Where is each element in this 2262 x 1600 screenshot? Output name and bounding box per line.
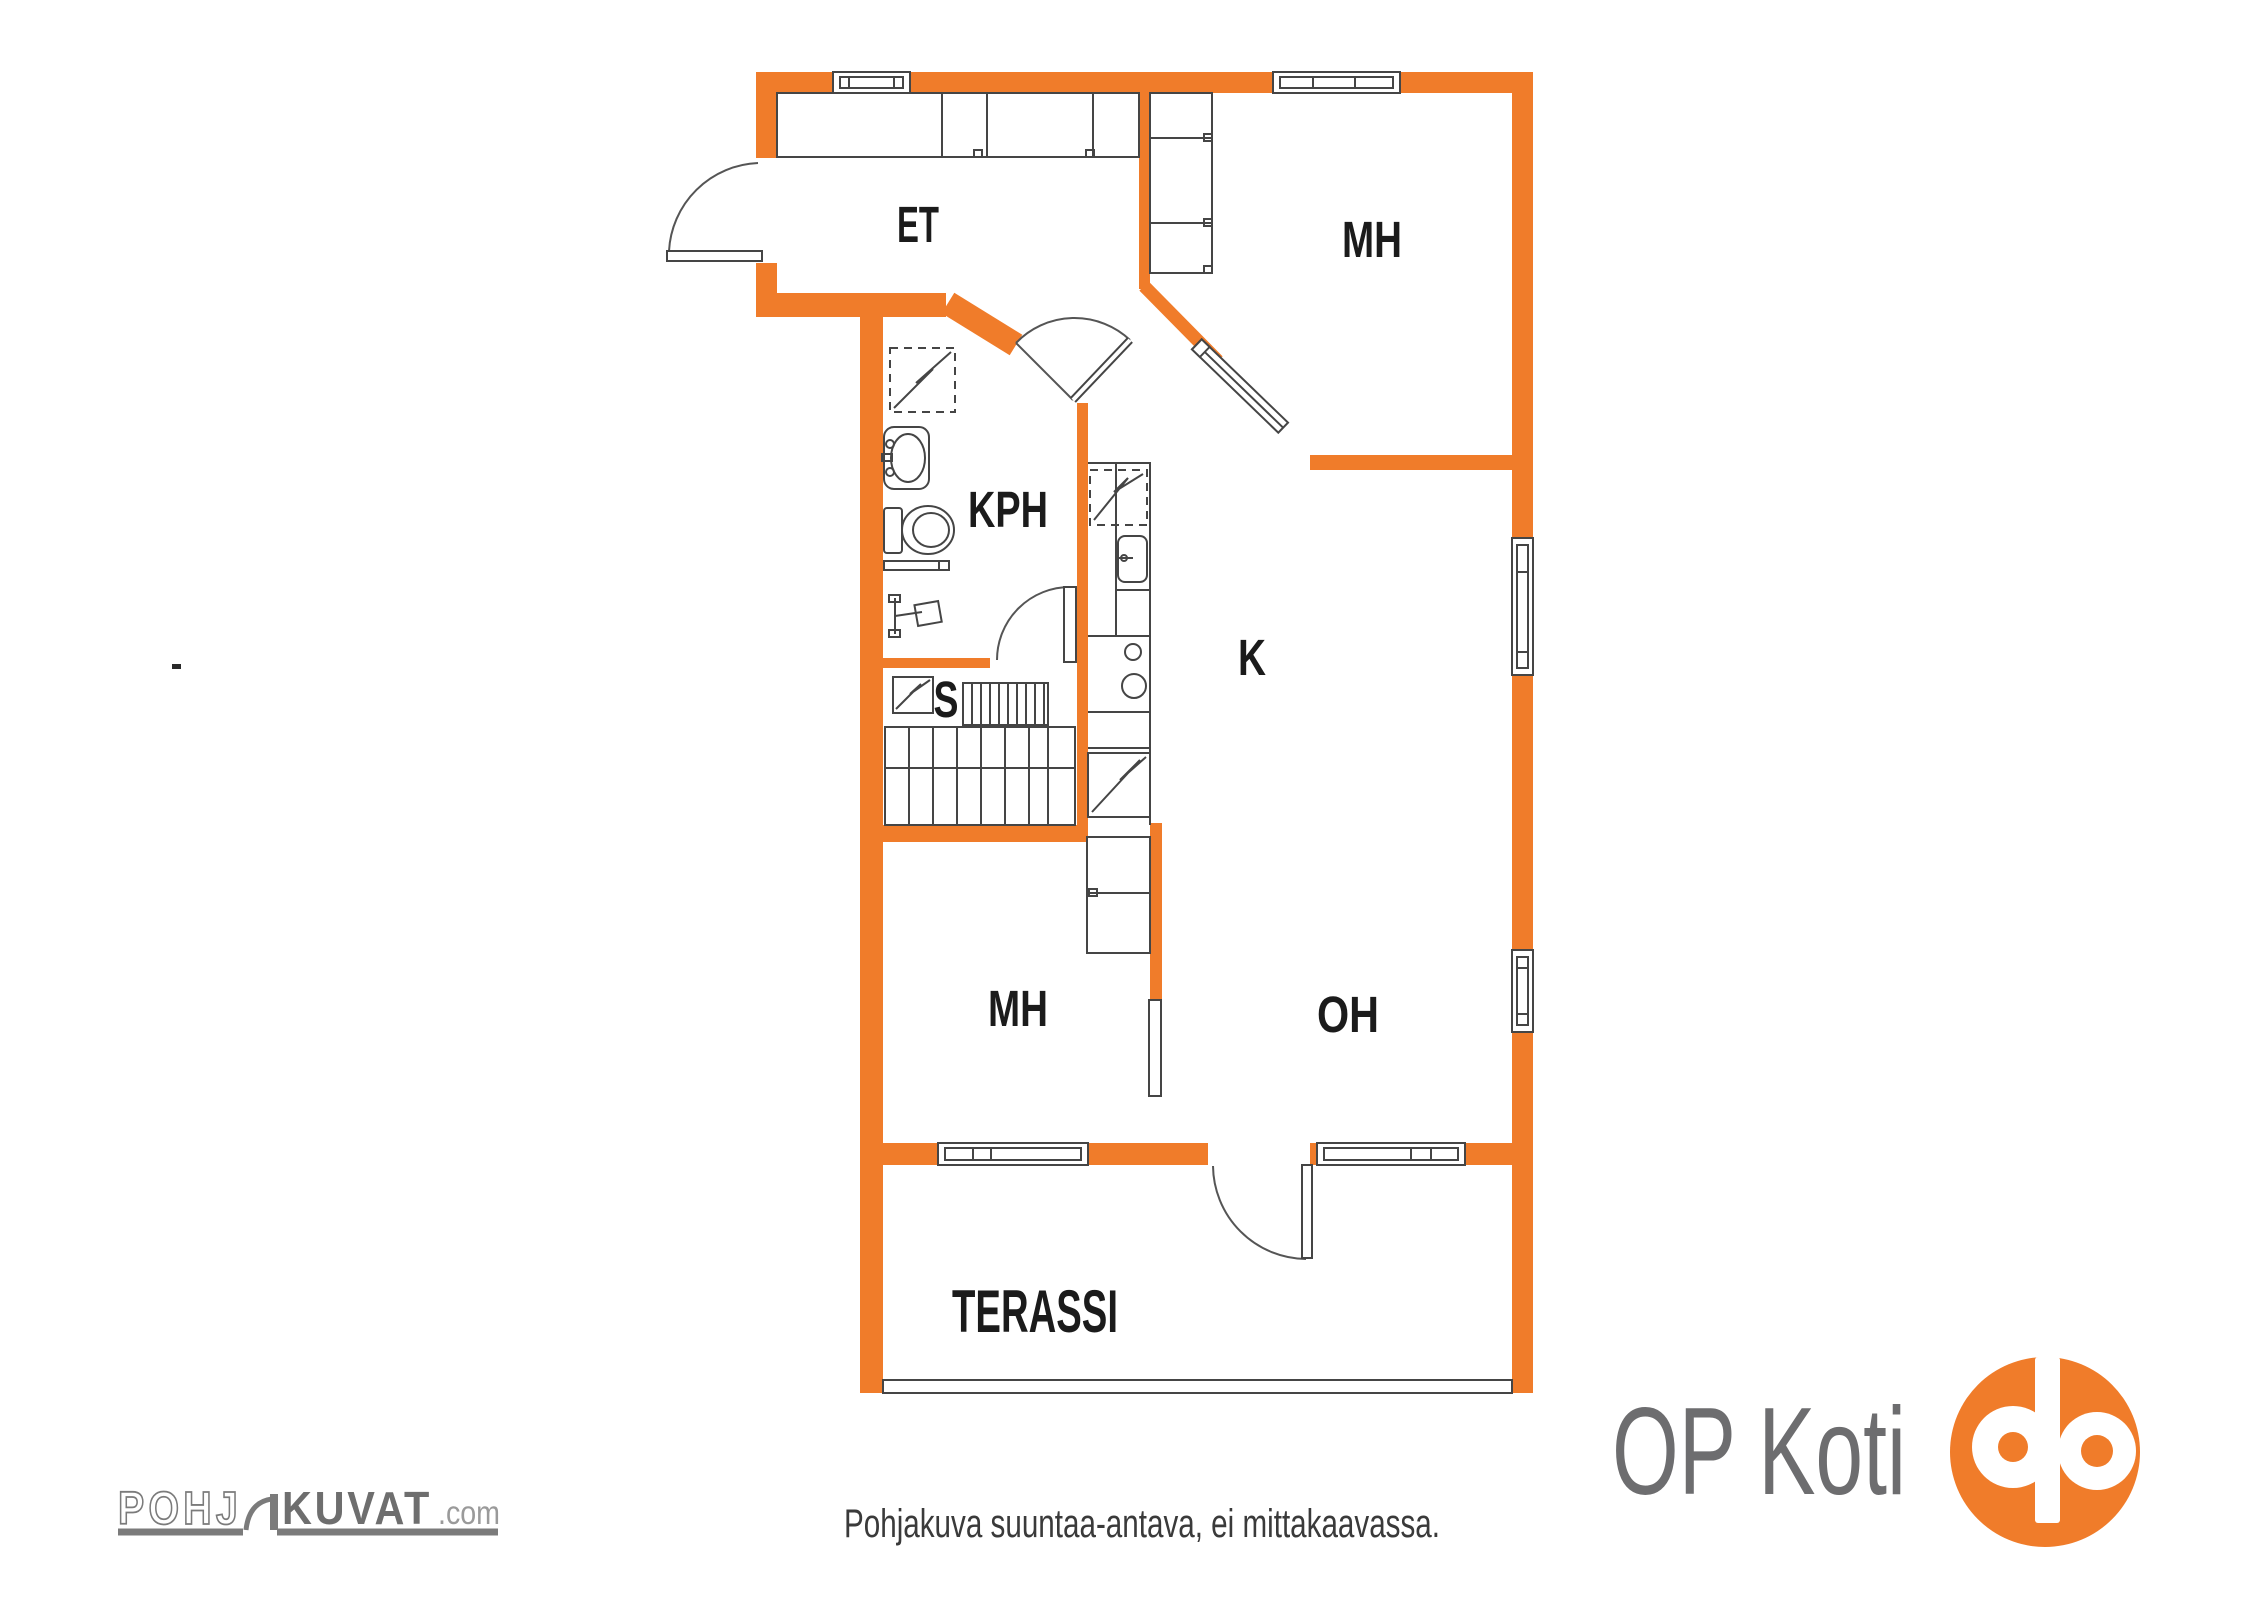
wall-top-middle bbox=[910, 72, 1273, 93]
wall-bedroom-divider bbox=[1139, 93, 1150, 289]
floor-plan-canvas: ET MH KPH K S MH OH TERASSI POHJ KUVAT .… bbox=[0, 0, 2262, 1600]
op-koti-logo: OP Koti bbox=[1612, 1357, 2140, 1547]
hall-fan-door bbox=[1016, 318, 1130, 400]
window-south-1 bbox=[938, 1143, 1088, 1165]
wall-bath-kitchen-divider bbox=[1077, 403, 1088, 842]
stray-dot bbox=[172, 664, 181, 669]
stairs bbox=[885, 683, 1075, 825]
room-label-sauna: S bbox=[934, 671, 959, 728]
room-label-entry: ET bbox=[897, 196, 939, 253]
fridge-icon bbox=[1088, 753, 1150, 817]
wall-right-middle bbox=[1512, 675, 1533, 950]
wall-bath-bottom bbox=[862, 658, 990, 668]
kitchen-sink-icon bbox=[1118, 536, 1147, 582]
wall-south-a bbox=[860, 1143, 938, 1165]
room-label-terrace: TERASSI bbox=[952, 1278, 1118, 1345]
dishwasher-icon bbox=[1090, 470, 1147, 525]
shower-icon bbox=[889, 595, 942, 637]
window-top-2 bbox=[1273, 72, 1400, 93]
room-label-living-room: OH bbox=[1317, 986, 1379, 1043]
disclaimer-text: Pohjakuva suuntaa-antava, ei mittakaavas… bbox=[844, 1502, 1440, 1546]
bathroom-sink-icon bbox=[882, 427, 929, 489]
wall-left-main bbox=[860, 317, 883, 1393]
room-label-kitchen: K bbox=[1238, 629, 1266, 686]
room-label-bathroom: KPH bbox=[968, 481, 1048, 538]
wall-entry-diagonal bbox=[948, 303, 1016, 345]
watermark-solid-text: KUVAT bbox=[282, 1482, 432, 1534]
wall-south-d bbox=[1465, 1143, 1533, 1165]
op-koti-wordmark: OP Koti bbox=[1612, 1383, 1906, 1521]
toilet-icon bbox=[884, 506, 954, 554]
wall-entry-left-upper bbox=[756, 72, 777, 158]
bedroom-sliding-door bbox=[1192, 339, 1288, 432]
op-symbol-icon bbox=[1950, 1357, 2140, 1547]
wall-right-lower bbox=[1512, 1032, 1533, 1393]
terrace-edge bbox=[883, 1380, 1512, 1393]
partition-screen bbox=[1149, 1000, 1161, 1096]
floor-plan: ET MH KPH K S MH OH TERASSI bbox=[667, 72, 1533, 1393]
entry-door bbox=[667, 163, 762, 261]
bathroom-door bbox=[997, 587, 1076, 662]
pohjakuvat-watermark: POHJ KUVAT .com bbox=[118, 1482, 500, 1534]
wall-entry-bottom bbox=[756, 293, 946, 317]
watermark-outline-text: POHJ bbox=[118, 1482, 242, 1534]
bedroom-bottom-closet bbox=[1087, 837, 1150, 953]
watermark-domain-suffix: .com bbox=[438, 1494, 500, 1531]
terrace-door bbox=[1213, 1165, 1312, 1259]
window-right-2 bbox=[1512, 950, 1533, 1032]
wall-south-c bbox=[1310, 1143, 1317, 1165]
bedroom-top-closet bbox=[1150, 93, 1212, 273]
room-label-bedroom-bottom: MH bbox=[988, 980, 1048, 1037]
interior-walls bbox=[860, 93, 1512, 1037]
stove-icon bbox=[1122, 644, 1146, 698]
sauna-stove-icon bbox=[893, 677, 933, 713]
washing-machine-icon bbox=[890, 348, 955, 412]
bath-shelf bbox=[884, 561, 949, 570]
window-top-1 bbox=[833, 72, 910, 93]
room-label-bedroom-top: MH bbox=[1342, 211, 1402, 268]
wall-south-b bbox=[1088, 1143, 1208, 1165]
window-right-1 bbox=[1512, 538, 1533, 675]
door-arc-icon bbox=[246, 1494, 274, 1530]
entry-wardrobe bbox=[777, 93, 1139, 157]
wall-right-upper bbox=[1512, 72, 1533, 538]
wall-bedroom-bottom bbox=[1310, 455, 1512, 470]
window-south-2 bbox=[1317, 1143, 1465, 1165]
wall-stairs-bottom bbox=[860, 825, 1087, 842]
